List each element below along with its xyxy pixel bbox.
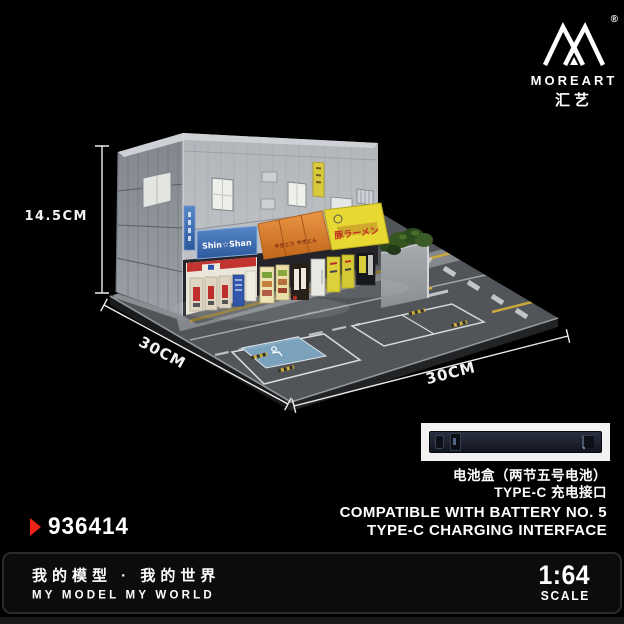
battery-connector-left [435, 435, 444, 449]
shop-door [311, 259, 325, 296]
battery-box-photo [421, 423, 610, 461]
brand-chinese-name: 汇艺 [526, 89, 622, 110]
product-poster: Shin☆Shan やきとり やきとん 豚ラーメン 14.5CM [0, 0, 624, 624]
dimension-height: 14.5CM [24, 146, 109, 293]
battery-caption-en: COMPATIBLE WITH BATTERY NO. 5 TYPE-C CHA… [340, 504, 607, 539]
left-facade [116, 133, 183, 316]
product-number-row: 936414 [30, 513, 134, 541]
red-triangle-icon [30, 518, 41, 536]
registered-mark: ® [611, 14, 618, 25]
footer-slogan: 我的模型 · 我的世界 MY MODEL MY WORLD [32, 565, 220, 602]
battery-caption-cn-line2: TYPE-C 充电接口 [453, 484, 607, 501]
bottom-edge-strip [0, 617, 624, 624]
footer-bar: 我的模型 · 我的世界 MY MODEL MY WORLD 1:64 SCALE [2, 552, 622, 614]
battery-caption-cn: 电池盒（两节五号电池） TYPE-C 充电接口 [453, 467, 607, 501]
shop-sign-ramen: 豚ラーメン [324, 203, 389, 250]
mountain-peaks-icon: ® [542, 16, 606, 71]
scale-label: SCALE [536, 589, 590, 603]
red-lantern [293, 296, 297, 300]
battery-caption-cn-line1: 电池盒（两节五号电池） [453, 467, 607, 484]
shop-doorway [291, 263, 309, 300]
ac-unit-1 [262, 172, 277, 182]
brand-name: MOREART [526, 73, 622, 88]
shop-sign-projecting [184, 206, 195, 250]
ac-unit-2 [261, 199, 275, 209]
scale-block: 1:64 SCALE [534, 563, 590, 603]
battery-caption-en-line2: TYPE-C CHARGING INTERFACE [340, 522, 607, 540]
scale-ratio: 1:64 [538, 563, 590, 589]
slogan-english: MY MODEL MY WORLD [32, 590, 220, 602]
product-number: 936414 [48, 513, 129, 541]
brand-logo-block: ® MOREART 汇艺 [526, 10, 622, 110]
battery-switch [450, 433, 461, 451]
building: Shin☆Shan やきとり やきとん 豚ラーメン [116, 133, 410, 321]
shop-sign-blue: Shin☆Shan [197, 226, 257, 259]
battery-caption-en-line1: COMPATIBLE WITH BATTERY NO. 5 [340, 504, 607, 522]
storefront-middle [260, 263, 309, 303]
slogan-chinese: 我的模型 · 我的世界 [32, 565, 220, 586]
yellow-menu-panel [342, 255, 354, 288]
dimension-height-label: 14.5CM [24, 209, 88, 224]
battery-box [429, 431, 602, 453]
battery-led-dot [583, 447, 585, 449]
yellow-menu-panel [327, 257, 340, 292]
